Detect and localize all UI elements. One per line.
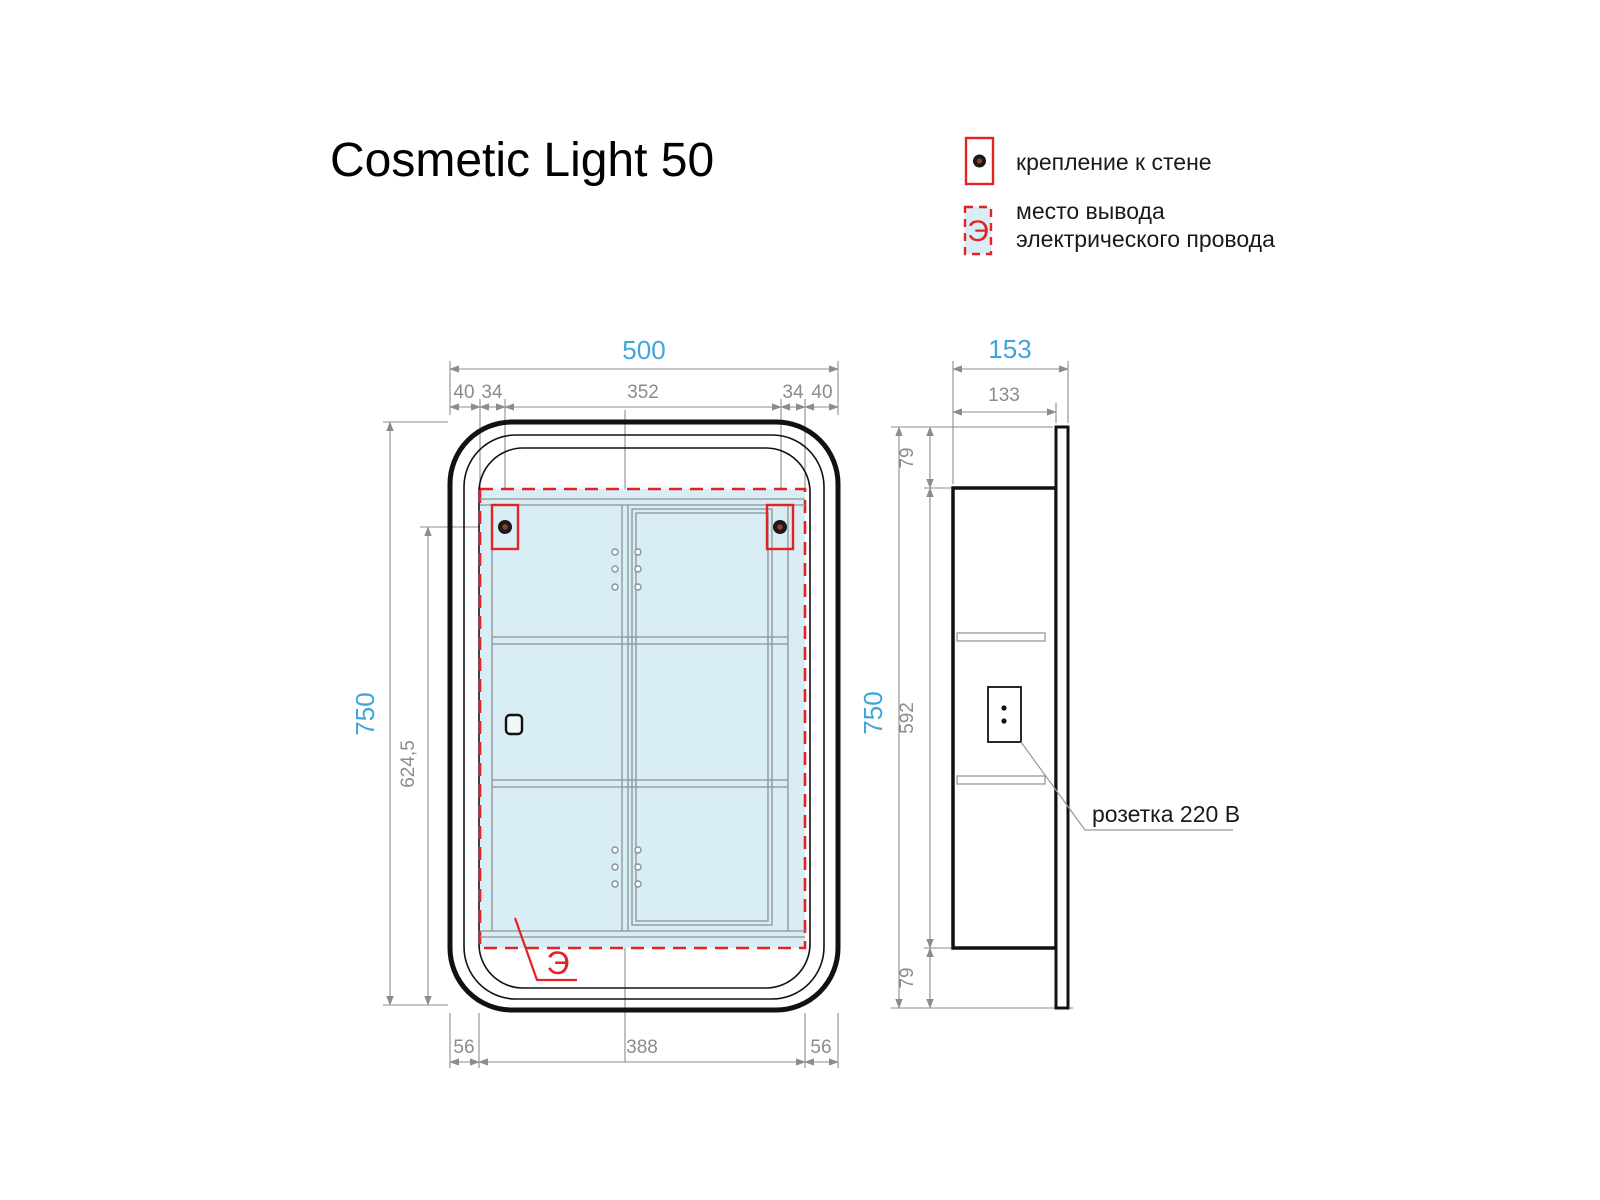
drawing-canvas: Cosmetic Light 50 крепление к стене Э ме… bbox=[0, 0, 1600, 1200]
front-view: 500 40 34 352 34 40 750 624,5 56 388 56 bbox=[350, 335, 838, 1068]
electric-callout-symbol: Э bbox=[547, 945, 570, 981]
page-title: Cosmetic Light 50 bbox=[330, 134, 714, 187]
electric-outlet-zone bbox=[480, 489, 805, 948]
front-bottom-dim-1: 388 bbox=[626, 1037, 658, 1058]
front-height-dim: 750 bbox=[350, 692, 380, 735]
front-width-dim: 500 bbox=[622, 335, 665, 365]
front-top-dim-0: 40 bbox=[453, 382, 474, 403]
wall-mount-label: крепление к стене bbox=[1016, 149, 1212, 175]
electric-symbol: Э bbox=[967, 215, 989, 248]
front-top-dim-4: 40 bbox=[811, 382, 832, 403]
side-body-height-dim: 592 bbox=[897, 702, 918, 734]
socket-label: розетка 220 В bbox=[1092, 801, 1240, 827]
wall-mount-dot-center bbox=[977, 158, 982, 163]
front-top-dim-2: 352 bbox=[627, 382, 659, 403]
side-shelf-lower bbox=[957, 776, 1045, 784]
side-depth-dim: 153 bbox=[988, 334, 1031, 364]
socket bbox=[988, 687, 1021, 742]
side-body-depth-dim: 133 bbox=[988, 385, 1020, 406]
side-mirror-door bbox=[1056, 427, 1068, 1008]
legend: крепление к стене Э место вывода электри… bbox=[965, 138, 1275, 254]
front-top-dim-3: 34 bbox=[782, 382, 804, 403]
technical-drawing-page: Cosmetic Light 50 крепление к стене Э ме… bbox=[0, 0, 1600, 1200]
front-mount-height-dim: 624,5 bbox=[398, 740, 419, 788]
side-shelf-upper bbox=[957, 633, 1045, 641]
side-bottom-offset-dim: 79 bbox=[897, 967, 918, 988]
front-top-dim-1: 34 bbox=[481, 382, 503, 403]
side-view: 153 133 750 79 592 79 розетка 220 В bbox=[858, 334, 1240, 1008]
side-top-offset-dim: 79 bbox=[897, 447, 918, 468]
front-bottom-dim-0: 56 bbox=[453, 1037, 474, 1058]
side-height-dim: 750 bbox=[858, 691, 888, 734]
front-bottom-dim-2: 56 bbox=[810, 1037, 831, 1058]
electric-label-line2: электрического провода bbox=[1016, 226, 1275, 252]
touch-switch-icon bbox=[506, 715, 522, 734]
electric-label-line1: место вывода bbox=[1016, 198, 1165, 224]
